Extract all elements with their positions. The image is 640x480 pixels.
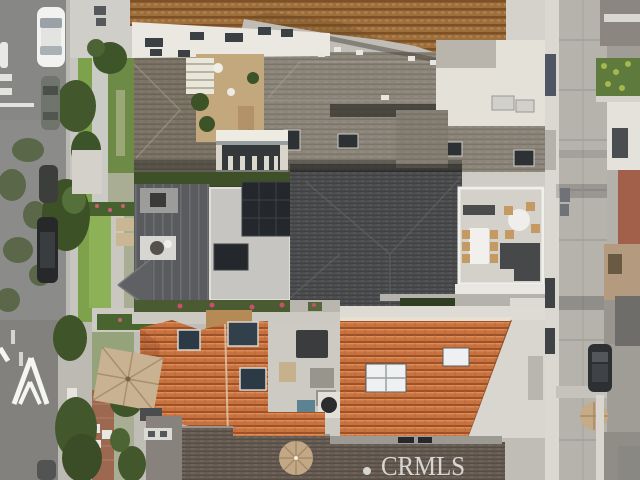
svg-text:CRMLS: CRMLS <box>381 451 465 480</box>
